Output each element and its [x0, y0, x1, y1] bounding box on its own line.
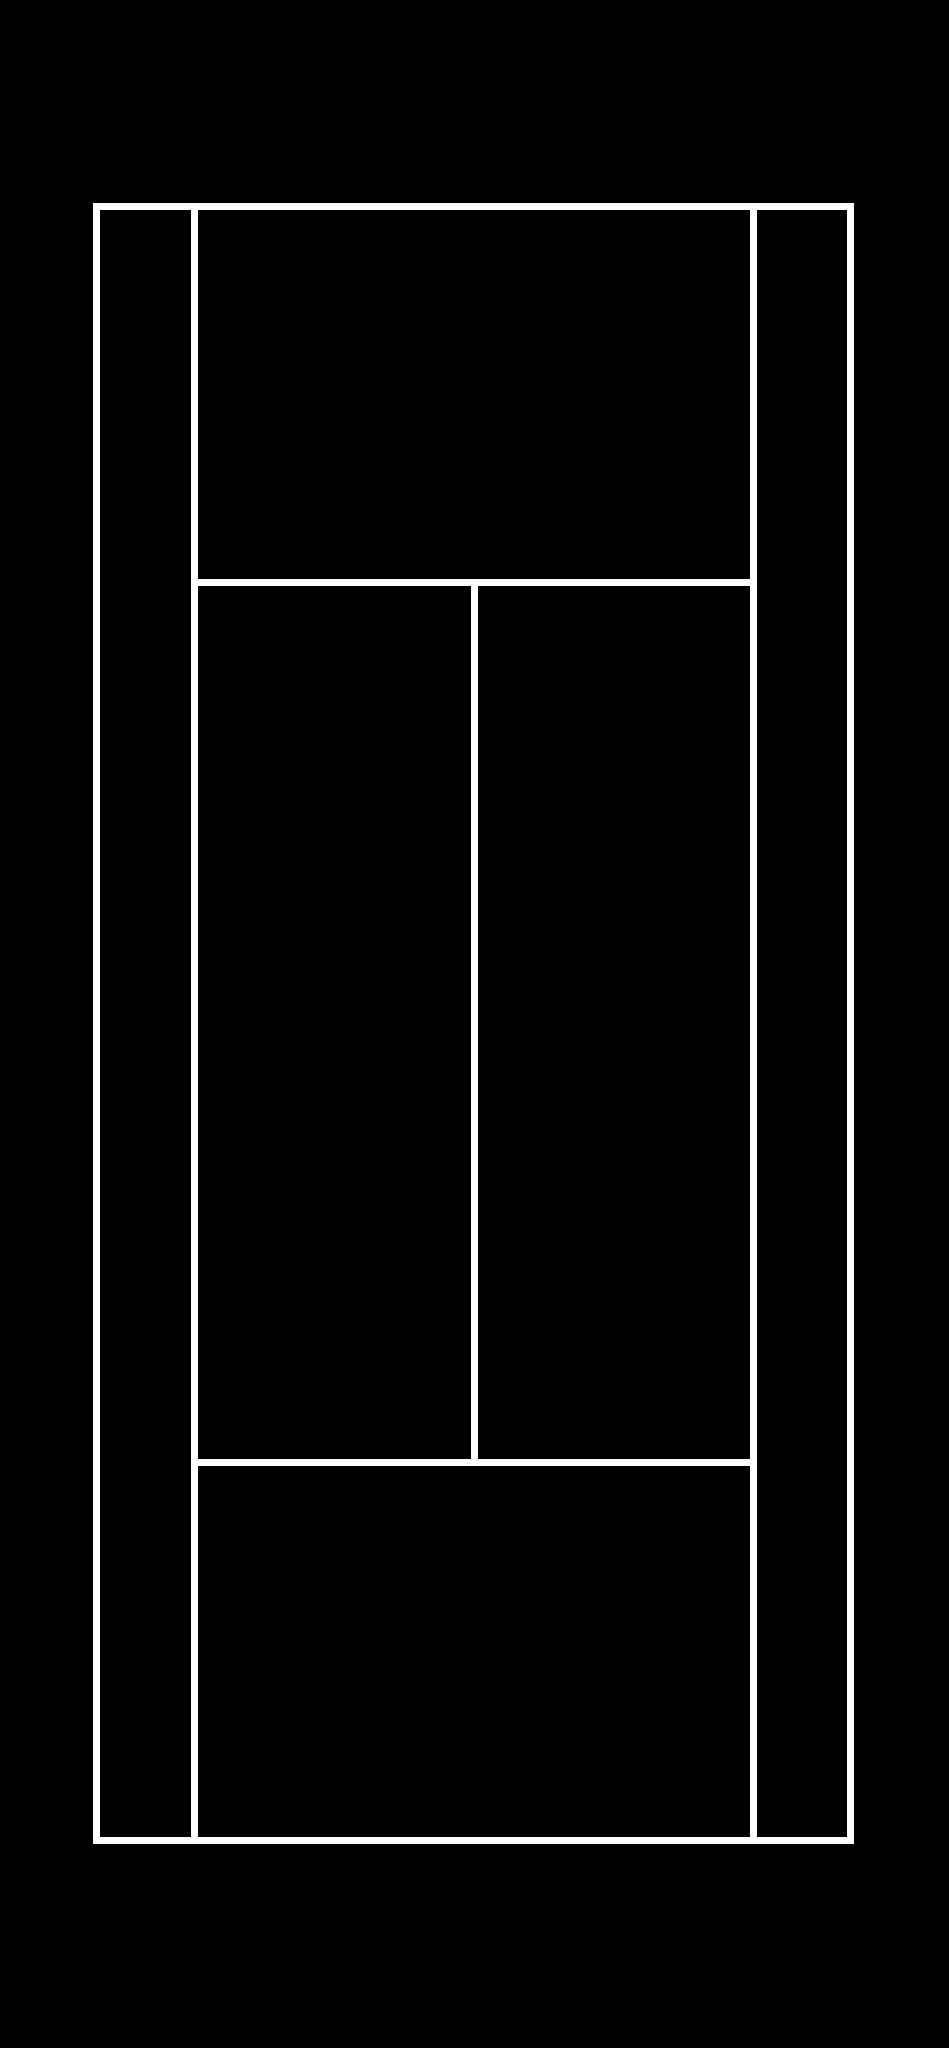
doubles-sideline-right [847, 203, 854, 1844]
service-line-top [198, 579, 750, 586]
doubles-sideline-left [93, 203, 100, 1844]
tennis-court-diagram [0, 0, 949, 2048]
baseline-bottom [93, 1837, 854, 1844]
center-service-line [471, 586, 478, 1459]
baseline-top [93, 203, 854, 210]
singles-sideline-left [191, 210, 198, 1837]
singles-sideline-right [750, 210, 757, 1837]
service-line-bottom [198, 1459, 750, 1466]
